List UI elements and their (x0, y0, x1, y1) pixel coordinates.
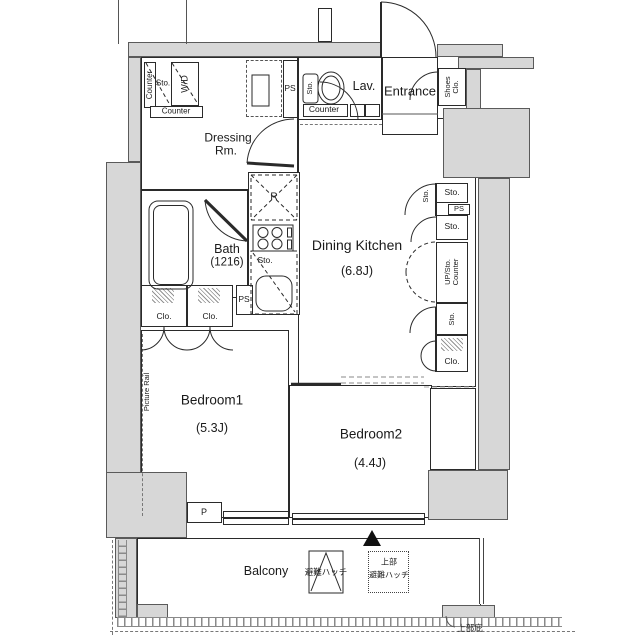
bathtub-inner (154, 206, 189, 285)
cell1-door-sto-label: Sto. (422, 189, 430, 202)
partition-track (341, 377, 424, 383)
floor-plan: Counter Sto. W/D Counter Dressing Rm. PS… (0, 0, 640, 639)
bathtub-outer (149, 201, 193, 289)
stove-burner-1 (258, 228, 268, 238)
kitchen-sink (256, 276, 292, 311)
evacuation-direction-triangle (363, 530, 381, 546)
evacuation-hatch-label: 避難ハッチ (305, 568, 348, 578)
dressing-room-label-2: Rm. (215, 144, 237, 157)
fixtures-layer (0, 0, 640, 639)
storage-cell1-label: Sto. (444, 188, 459, 198)
pipe-space-top-label: PS (284, 84, 295, 94)
dining-kitchen-label: Dining Kitchen (312, 238, 402, 254)
closet2-door-arc-right (210, 327, 233, 350)
bedroom1-label: Bedroom1 (181, 392, 243, 407)
pipe-box-label: P (201, 507, 207, 517)
up-storage-counter-label: UP/Sto.Counter (444, 259, 460, 286)
washer-dryer-label: W/D (180, 75, 189, 93)
upsto-door-arc-2 (406, 272, 436, 302)
toilet-bowl-inner (322, 76, 340, 100)
dressing-door-arc (247, 119, 294, 163)
dressing-door-leaf (247, 163, 294, 166)
bath-size: (1216) (210, 257, 243, 270)
closet-bedroom2-label: Clo. (444, 357, 459, 367)
upsto-door-arc-1 (406, 242, 436, 272)
upper-hatch-label-2: 避難ハッチ (369, 572, 409, 581)
entrance-door-arc (381, 2, 436, 57)
bath-label: Bath (214, 242, 240, 256)
storage-cell3-label: Sto. (448, 312, 456, 325)
cell3-door-arc (410, 307, 436, 333)
shoes-closet-label: ShoesClo. (444, 76, 460, 97)
stove-burner-2 (272, 228, 282, 238)
closet1-door-arc-left (141, 327, 164, 350)
closet1-door-arc-right (164, 327, 187, 350)
cell2-door-arc (411, 217, 436, 242)
closet2-door-arc-left (187, 327, 210, 350)
dining-kitchen-size: (6.8J) (341, 264, 373, 278)
dressing-cabinet-inner (252, 75, 269, 106)
pipe-space-mid-label: PS (238, 295, 249, 305)
bedroom1-size: (5.3J) (196, 421, 228, 435)
lav-sto-label: Sto. (306, 81, 314, 94)
upper-hatch-label-1: 上部 (381, 559, 397, 568)
stove-burner-3 (258, 239, 268, 249)
lav-label: Lav. (353, 79, 376, 93)
closet1-label: Clo. (156, 312, 171, 322)
eave-leader (446, 616, 455, 627)
bedroom2-label: Bedroom2 (340, 426, 402, 441)
pipe-space-right-label: PS (454, 205, 464, 213)
picture-rail-label: Picture Rail (143, 373, 151, 411)
bedroom2-size: (4.4J) (354, 456, 386, 470)
stove-burner-4 (272, 239, 282, 249)
bedroom2-closet-arc-1 (421, 341, 436, 356)
entrance-label: Entrance (384, 85, 436, 100)
dressing-counter-h-label: Counter (162, 108, 190, 117)
eave-label: 上部庇 (457, 624, 483, 634)
bedroom2-closet-arc-2 (421, 356, 436, 371)
stove-panel-2 (288, 240, 292, 249)
balcony-label: Balcony (244, 564, 288, 578)
closet2-label: Clo. (202, 312, 217, 322)
lav-counter-label: Counter (309, 105, 339, 115)
kitchen-sto-label: Sto. (257, 256, 272, 266)
dressing-sto-label: Sto. (156, 80, 170, 89)
dressing-counter-v-label: Counter (146, 71, 154, 99)
storage-cell2-label: Sto. (444, 222, 459, 232)
refrigerator-label: R (270, 191, 277, 202)
stove-panel-1 (288, 228, 292, 237)
